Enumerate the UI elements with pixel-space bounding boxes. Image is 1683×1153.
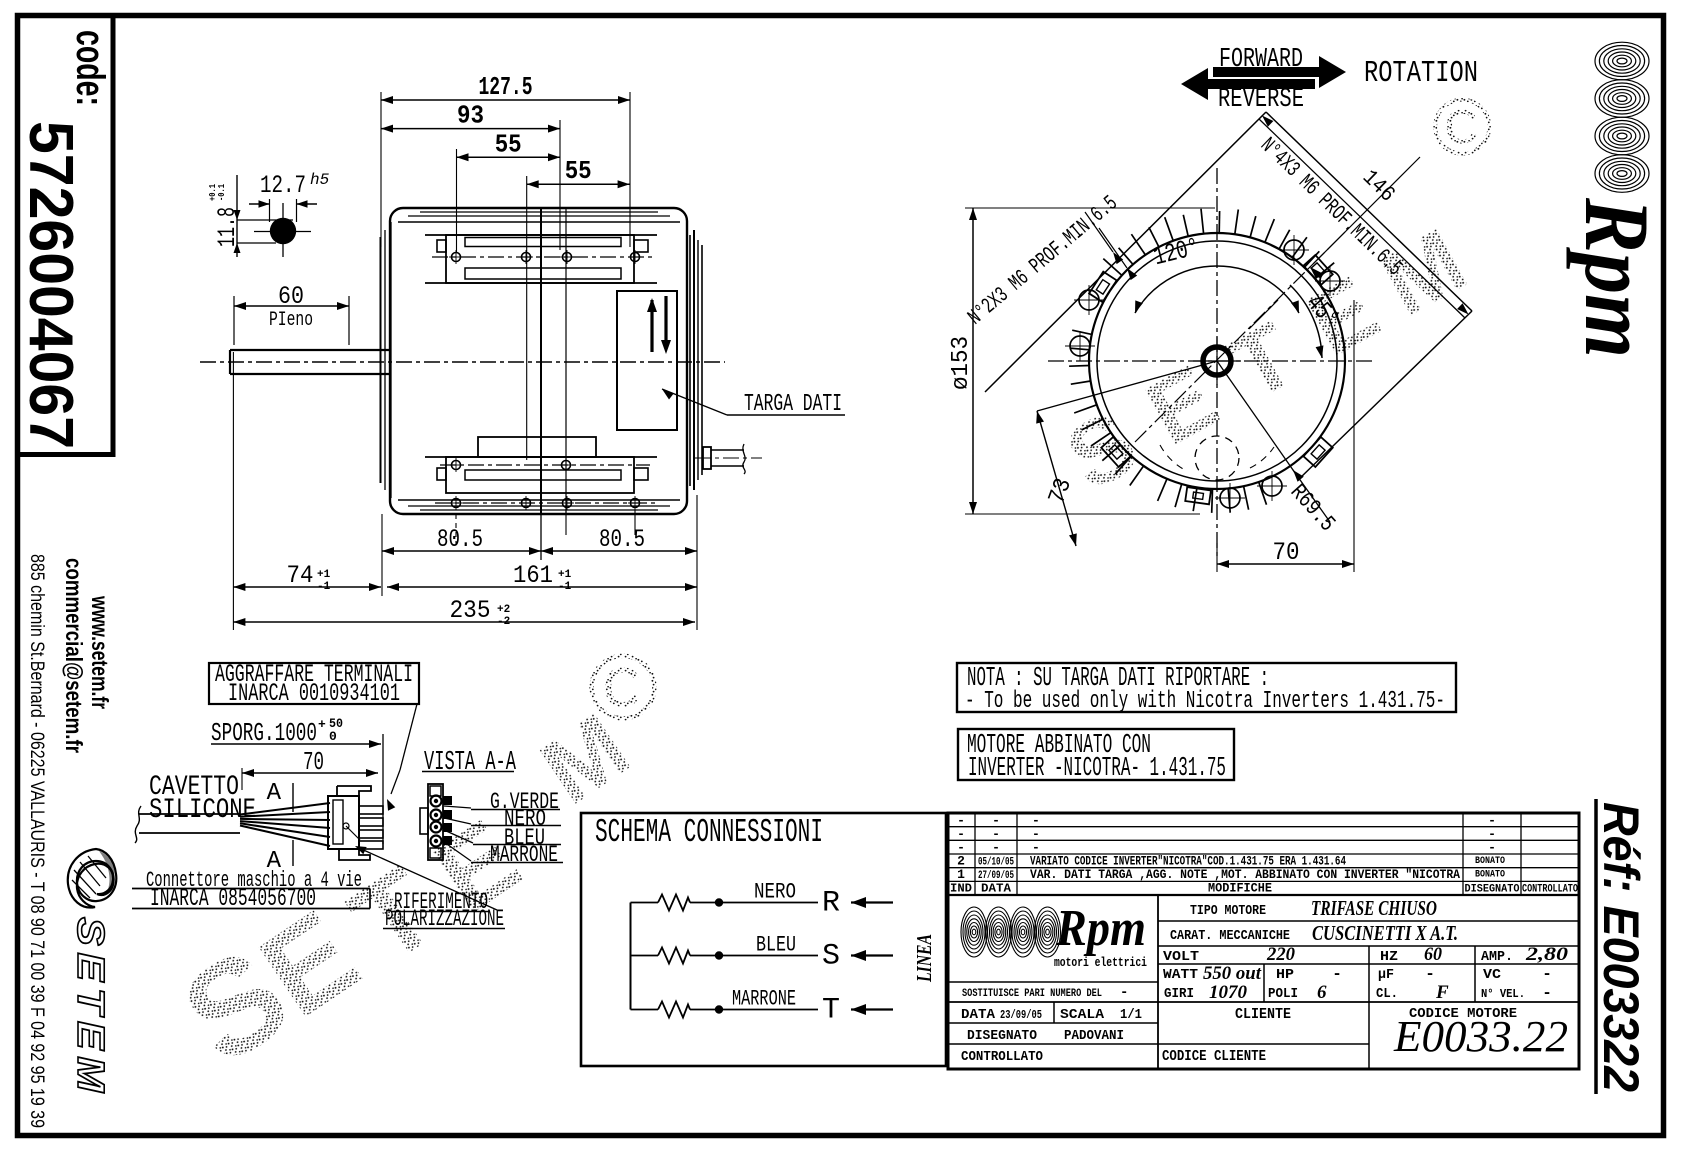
svg-text:www.setem.fr: www.setem.fr <box>87 595 113 709</box>
svg-text:SOSTITUISCE PARI NUMERO DEL: SOSTITUISCE PARI NUMERO DEL <box>962 988 1102 1000</box>
svg-text:-: - <box>1332 965 1342 983</box>
svg-text:74: 74 <box>287 561 314 590</box>
svg-text:NERO: NERO <box>754 880 796 905</box>
svg-text:PADOVANI: PADOVANI <box>1064 1028 1124 1044</box>
svg-text:PIeno: PIeno <box>269 309 313 332</box>
svg-text:+2: +2 <box>497 604 510 616</box>
svg-text:S: S <box>822 940 840 974</box>
svg-text:E0033.22: E0033.22 <box>1393 1012 1568 1061</box>
svg-text:-1: -1 <box>317 581 331 593</box>
svg-text:1/1: 1/1 <box>1120 1007 1142 1023</box>
svg-text:TARGA DATI: TARGA DATI <box>744 391 842 418</box>
svg-text:05/10/05: 05/10/05 <box>978 857 1014 869</box>
svg-text:CONTROLLATO: CONTROLLATO <box>961 1049 1043 1065</box>
svg-text:-: - <box>992 840 1000 855</box>
svg-text:-1: -1 <box>558 581 572 593</box>
svg-text:80.5: 80.5 <box>599 525 645 554</box>
svg-text:SILICONE: SILICONE <box>149 795 256 826</box>
svg-text:60: 60 <box>1424 944 1442 965</box>
svg-text:+1: +1 <box>317 569 331 581</box>
svg-text:70: 70 <box>1273 538 1300 567</box>
svg-text:CONTROLLATO: CONTROLLATO <box>1522 884 1578 896</box>
svg-text:MARRONE: MARRONE <box>490 842 558 868</box>
svg-text:+: + <box>318 717 326 732</box>
svg-text:235: 235 <box>450 596 491 625</box>
svg-text:-: - <box>1542 965 1552 983</box>
svg-text:code:: code: <box>68 30 112 106</box>
svg-text:A: A <box>267 780 282 807</box>
svg-text:CARAT. MECCANICHE: CARAT. MECCANICHE <box>1170 928 1290 944</box>
svg-text:BONATO: BONATO <box>1475 870 1505 881</box>
svg-text:5726004067: 5726004067 <box>16 121 85 449</box>
svg-text:VISTA A-A: VISTA A-A <box>424 748 517 778</box>
svg-text:885 chemin St.Bernard - 06225: 885 chemin St.Bernard - 06225 VALLAURIS … <box>26 554 47 1128</box>
svg-text:CL.: CL. <box>1376 986 1398 1002</box>
svg-text:DISEGNATO: DISEGNATO <box>967 1028 1037 1044</box>
svg-text:HZ: HZ <box>1380 949 1398 965</box>
svg-text:27/09/05: 27/09/05 <box>978 870 1014 882</box>
svg-text:INARCA 0010934101: INARCA 0010934101 <box>228 679 400 708</box>
svg-text:Rpm: Rpm <box>1055 900 1146 957</box>
svg-text:-: - <box>1120 985 1128 1001</box>
svg-text:ø153: ø153 <box>948 336 975 390</box>
svg-text:VOLT: VOLT <box>1163 949 1199 965</box>
svg-text:SETEM: SETEM <box>69 917 111 1099</box>
svg-text:R: R <box>822 887 840 921</box>
svg-text:Réf: E003322: Réf: E003322 <box>1593 802 1649 1092</box>
svg-text:12.7: 12.7 <box>260 171 306 200</box>
svg-text:IND: IND <box>950 882 972 896</box>
svg-text:Rpm: Rpm <box>1566 197 1668 358</box>
svg-text:©: © <box>588 635 658 741</box>
svg-text:GIRI: GIRI <box>1164 986 1194 1002</box>
svg-text:N° VEL.: N° VEL. <box>1481 987 1525 1001</box>
svg-text:DATA: DATA <box>961 1007 996 1023</box>
svg-text:INVERTER -NICOTRA- 1.431.75: INVERTER -NICOTRA- 1.431.75 <box>968 754 1226 784</box>
svg-text:CODICE CLIENTE: CODICE CLIENTE <box>1162 1048 1266 1065</box>
svg-text:DISEGNATO: DISEGNATO <box>1465 884 1520 896</box>
svg-text:11.8: 11.8 <box>213 207 242 247</box>
svg-text:DATA: DATA <box>981 882 1012 896</box>
svg-text:POLI: POLI <box>1268 986 1298 1002</box>
svg-text:VC: VC <box>1483 967 1502 983</box>
svg-text:AMP.: AMP. <box>1481 949 1513 965</box>
svg-text:127.5: 127.5 <box>479 72 533 102</box>
svg-text:-: - <box>1488 840 1496 855</box>
svg-text:0: 0 <box>329 729 337 744</box>
svg-text:TIPO MOTORE: TIPO MOTORE <box>1190 903 1266 919</box>
svg-text:1070: 1070 <box>1209 982 1248 1003</box>
svg-text:60: 60 <box>278 282 304 311</box>
svg-text:-: - <box>1425 965 1435 983</box>
svg-text:F: F <box>1435 982 1449 1003</box>
svg-text:MODIFICHE: MODIFICHE <box>1208 881 1272 896</box>
svg-text:TRIFASE CHIUSO: TRIFASE CHIUSO <box>1311 896 1437 920</box>
svg-text:2,80: 2,80 <box>1525 944 1569 965</box>
svg-text:ROTATION: ROTATION <box>1364 56 1478 91</box>
svg-text:55: 55 <box>565 156 592 186</box>
svg-text:- To be used only with Nicotra: - To be used only with Nicotra Inverters… <box>965 688 1445 715</box>
svg-text:-: - <box>1542 984 1552 1002</box>
svg-text:1: 1 <box>957 867 965 882</box>
svg-text:55: 55 <box>495 129 522 159</box>
svg-text:BLEU: BLEU <box>756 933 796 958</box>
svg-text:WATT: WATT <box>1163 967 1198 983</box>
svg-text:h5: h5 <box>310 171 330 189</box>
svg-text:220: 220 <box>1266 944 1295 965</box>
svg-text:93: 93 <box>457 101 484 131</box>
svg-text:23/09/05: 23/09/05 <box>1000 1008 1042 1022</box>
svg-text:©: © <box>1432 82 1492 173</box>
svg-text:CUSCINETTI X A.T.: CUSCINETTI X A.T. <box>1312 921 1458 945</box>
svg-text:80.5: 80.5 <box>437 525 483 554</box>
svg-text:MARRONE: MARRONE <box>732 987 796 1012</box>
svg-text:motori elettrici: motori elettrici <box>1054 955 1147 970</box>
svg-text:6: 6 <box>1317 982 1327 1003</box>
svg-text:-0.1: -0.1 <box>217 184 227 201</box>
svg-text:commercial@setem.fr: commercial@setem.fr <box>61 558 87 753</box>
svg-text:µF: µF <box>1378 967 1394 983</box>
svg-text:SCHEMA CONNESSIONI: SCHEMA CONNESSIONI <box>595 814 823 851</box>
svg-text:CLIENTE: CLIENTE <box>1235 1006 1291 1023</box>
svg-text:-2: -2 <box>497 616 510 628</box>
svg-text:LINEA: LINEA <box>912 934 936 983</box>
svg-text:161: 161 <box>513 561 553 590</box>
svg-text:REVERSE: REVERSE <box>1218 85 1304 115</box>
svg-text:T: T <box>822 994 840 1028</box>
svg-text:+1: +1 <box>558 569 572 581</box>
svg-text:SCALA: SCALA <box>1060 1007 1105 1023</box>
svg-text:BONATO: BONATO <box>1475 856 1505 867</box>
svg-text:HP: HP <box>1276 967 1294 983</box>
svg-text:550 out: 550 out <box>1203 963 1262 984</box>
